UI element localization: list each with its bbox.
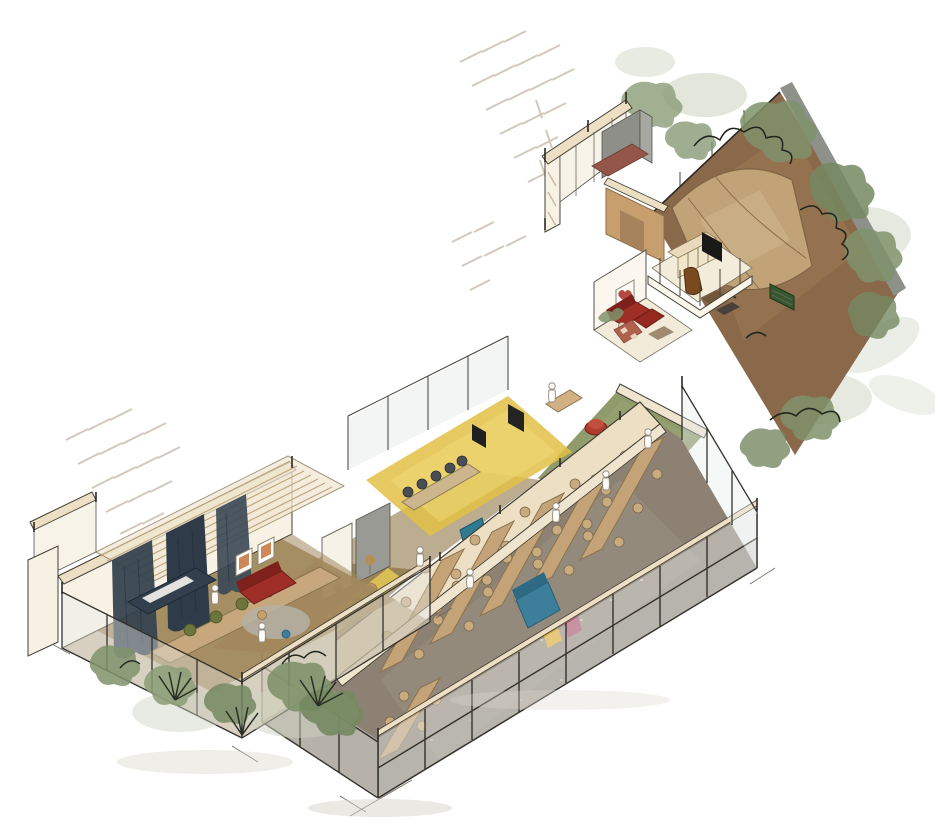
person-figure (603, 471, 610, 490)
person-figure (645, 429, 652, 448)
axonometric-sketch (0, 0, 935, 836)
person-body (417, 554, 424, 566)
person-head (549, 383, 555, 389)
service-rooms (542, 92, 668, 262)
person-body (603, 478, 610, 490)
person-body (553, 510, 560, 522)
sketch-canvas (0, 0, 935, 836)
faint-leaves (864, 367, 935, 423)
person-figure (259, 623, 266, 642)
person-figure (417, 547, 424, 566)
person-head (603, 471, 609, 477)
person-head (467, 569, 473, 575)
side-table (258, 611, 267, 620)
shadow (117, 750, 293, 774)
person-figure (549, 383, 556, 402)
person-body (467, 576, 474, 588)
person-head (645, 429, 651, 435)
person-body (259, 630, 266, 642)
hatch-stroke-cluster (452, 222, 526, 290)
red-pouf-top (588, 419, 604, 429)
person-figure (553, 503, 560, 522)
stool-teal (282, 630, 290, 638)
shadow (308, 799, 452, 817)
person-head (212, 585, 218, 591)
round-rug (242, 605, 310, 639)
pendant-lamp-shade (365, 555, 375, 565)
west-end-wall (28, 546, 58, 656)
person-head (417, 547, 423, 553)
person-figure (467, 569, 474, 588)
person-head (553, 503, 559, 509)
person-figure (212, 585, 219, 604)
person-head (259, 623, 265, 629)
shadow (450, 690, 670, 710)
foliage-blob (665, 121, 716, 160)
foliage-wash (615, 47, 675, 77)
foliage-blob (740, 428, 790, 468)
person-body (212, 592, 219, 604)
person-body (549, 390, 556, 402)
person-body (645, 436, 652, 448)
